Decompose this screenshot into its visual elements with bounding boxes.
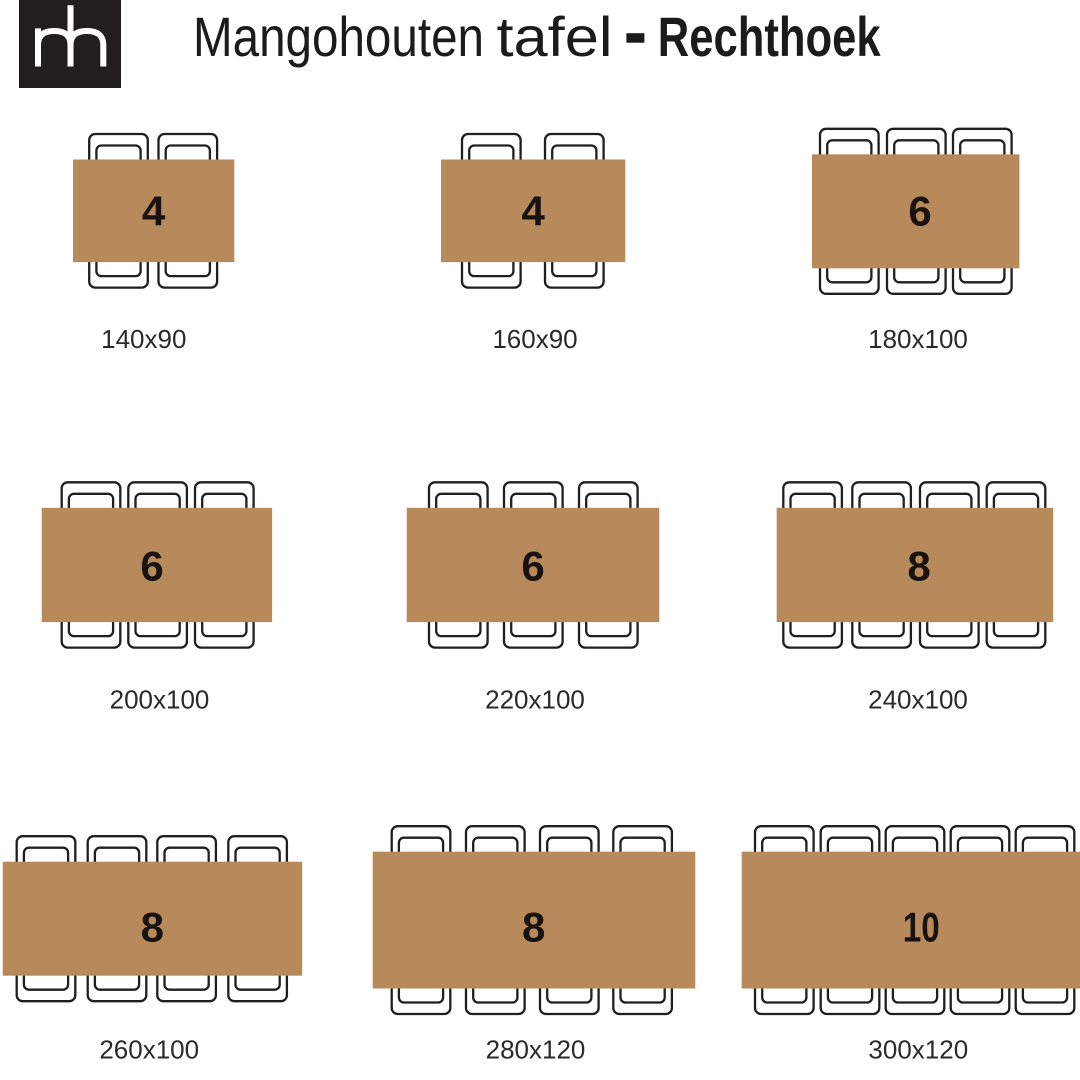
svg-text:260x100: 260x100 [99, 1034, 199, 1064]
svg-text:8: 8 [907, 542, 930, 589]
svg-text:220x100: 220x100 [485, 684, 585, 714]
svg-text:6: 6 [908, 188, 931, 235]
svg-text:Rechthoek: Rechthoek [658, 5, 882, 68]
svg-text:240x100: 240x100 [868, 684, 968, 714]
svg-text:6: 6 [521, 542, 544, 589]
svg-text:tafel: tafel [497, 5, 613, 68]
svg-text:8: 8 [141, 903, 164, 950]
svg-text:300x120: 300x120 [868, 1034, 968, 1064]
svg-text:140x90: 140x90 [101, 324, 186, 354]
svg-text:160x90: 160x90 [492, 324, 577, 354]
svg-text:8: 8 [522, 903, 545, 950]
svg-text:6: 6 [140, 542, 163, 589]
svg-text:180x100: 180x100 [868, 324, 968, 354]
svg-text:10: 10 [903, 903, 940, 950]
svg-text:4: 4 [522, 188, 546, 235]
svg-text:Mangohouten: Mangohouten [193, 5, 484, 68]
svg-text:280x120: 280x120 [486, 1034, 586, 1064]
svg-text:4: 4 [142, 188, 166, 235]
svg-text:200x100: 200x100 [110, 684, 210, 714]
